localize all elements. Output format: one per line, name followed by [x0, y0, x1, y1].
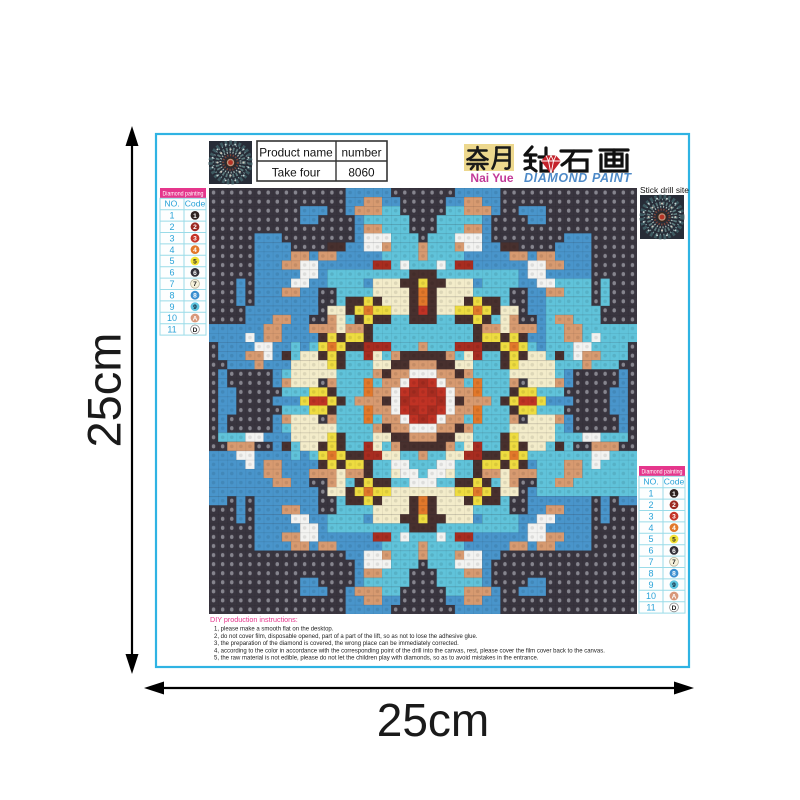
- svg-text:8: 8: [193, 293, 197, 300]
- svg-text:2: 2: [193, 224, 197, 231]
- svg-text:4: 4: [672, 525, 676, 532]
- svg-text:1, please make a smooth flat o: 1, please make a smooth flat on the desk…: [214, 627, 334, 633]
- svg-text:2: 2: [648, 500, 653, 510]
- svg-text:6: 6: [672, 548, 676, 555]
- svg-text:5: 5: [193, 258, 197, 265]
- svg-text:number: number: [342, 146, 382, 160]
- svg-text:7: 7: [193, 281, 197, 288]
- svg-text:9: 9: [648, 580, 653, 590]
- svg-text:Code: Code: [185, 199, 206, 209]
- svg-text:8: 8: [169, 290, 174, 300]
- svg-text:D: D: [672, 605, 677, 612]
- svg-text:3: 3: [648, 511, 653, 521]
- svg-text:8: 8: [672, 571, 676, 578]
- svg-text:9: 9: [193, 304, 197, 311]
- svg-text:Code: Code: [664, 477, 685, 487]
- svg-text:3: 3: [193, 236, 197, 243]
- svg-text:DIY production instructions:: DIY production instructions:: [210, 615, 298, 624]
- svg-text:5: 5: [169, 256, 174, 266]
- svg-text:1: 1: [193, 213, 197, 220]
- svg-text:7: 7: [169, 279, 174, 289]
- svg-text:NO.: NO.: [643, 477, 658, 487]
- svg-text:Stick drill site: Stick drill site: [640, 185, 689, 195]
- svg-text:4: 4: [169, 245, 174, 255]
- svg-text:1: 1: [672, 491, 676, 498]
- svg-text:4: 4: [648, 523, 653, 533]
- svg-text:7: 7: [672, 559, 676, 566]
- svg-text:Diamond painting: Diamond painting: [642, 469, 683, 476]
- svg-text:2: 2: [672, 502, 676, 509]
- svg-text:6: 6: [193, 270, 197, 277]
- svg-text:10: 10: [646, 591, 656, 601]
- svg-text:Take four: Take four: [272, 166, 321, 180]
- svg-text:25cm: 25cm: [377, 694, 489, 746]
- svg-text:8: 8: [648, 568, 653, 578]
- svg-text:4, according to the color in a: 4, according to the color in accordance …: [214, 648, 605, 654]
- svg-text:NO.: NO.: [164, 199, 179, 209]
- svg-text:9: 9: [672, 582, 676, 589]
- svg-text:5: 5: [648, 534, 653, 544]
- svg-text:11: 11: [167, 325, 176, 335]
- svg-text:2: 2: [169, 222, 174, 232]
- svg-text:6: 6: [169, 268, 174, 278]
- svg-text:3: 3: [672, 514, 676, 521]
- svg-text:1: 1: [169, 211, 174, 221]
- svg-text:5, the raw material is not edi: 5, the raw material is not edible, pleas…: [214, 656, 539, 662]
- svg-text:8060: 8060: [348, 166, 375, 180]
- svg-text:10: 10: [167, 313, 177, 323]
- svg-text:2, do not cover film, disposab: 2, do not cover film, disposable opened,…: [214, 634, 478, 640]
- svg-text:A: A: [672, 593, 677, 600]
- svg-text:1: 1: [648, 489, 653, 499]
- svg-text:5: 5: [672, 536, 676, 543]
- svg-text:A: A: [193, 315, 198, 322]
- svg-text:25cm: 25cm: [77, 333, 130, 448]
- svg-text:3: 3: [169, 233, 174, 243]
- svg-text:4: 4: [193, 247, 197, 254]
- svg-text:11: 11: [646, 603, 655, 613]
- svg-text:DIAMOND PAINT: DIAMOND PAINT: [524, 171, 632, 185]
- svg-text:3, the preparation of the diam: 3, the preparation of the diamond is cov…: [214, 641, 459, 647]
- svg-text:D: D: [193, 327, 198, 334]
- svg-text:7: 7: [648, 557, 653, 567]
- svg-text:Product name: Product name: [259, 146, 333, 160]
- svg-text:Nai Yue: Nai Yue: [470, 171, 513, 185]
- svg-text:Diamond painting: Diamond painting: [163, 191, 204, 198]
- svg-text:9: 9: [169, 302, 174, 312]
- svg-text:6: 6: [648, 546, 653, 556]
